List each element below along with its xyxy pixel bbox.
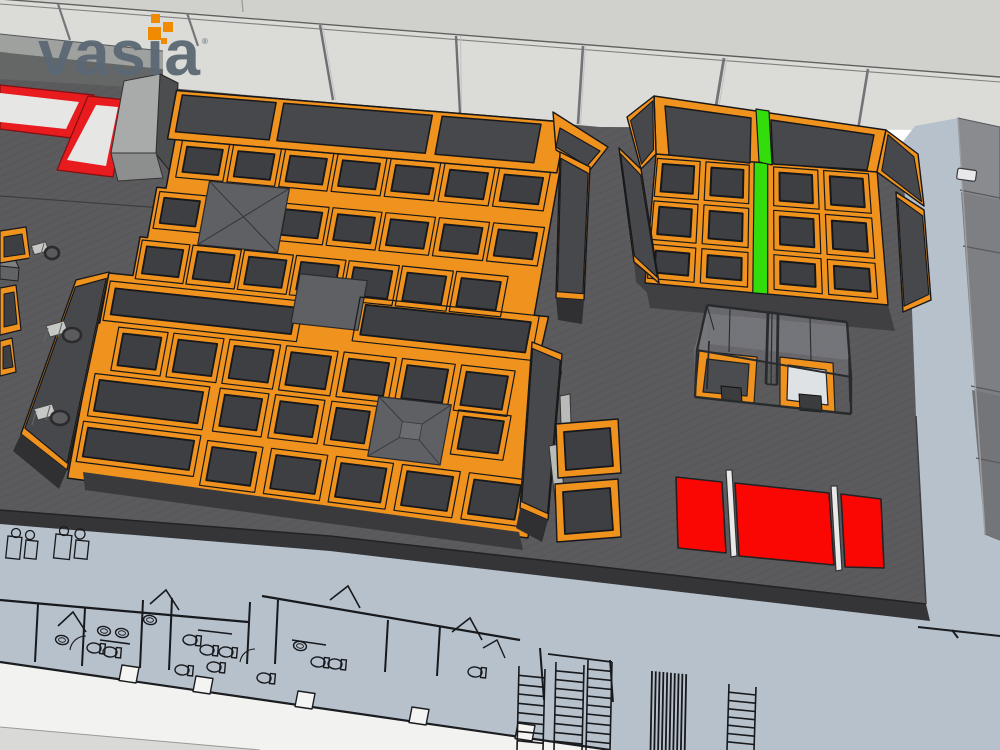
svg-text:vasia: vasia	[38, 17, 200, 89]
svg-text:®: ®	[202, 37, 208, 46]
